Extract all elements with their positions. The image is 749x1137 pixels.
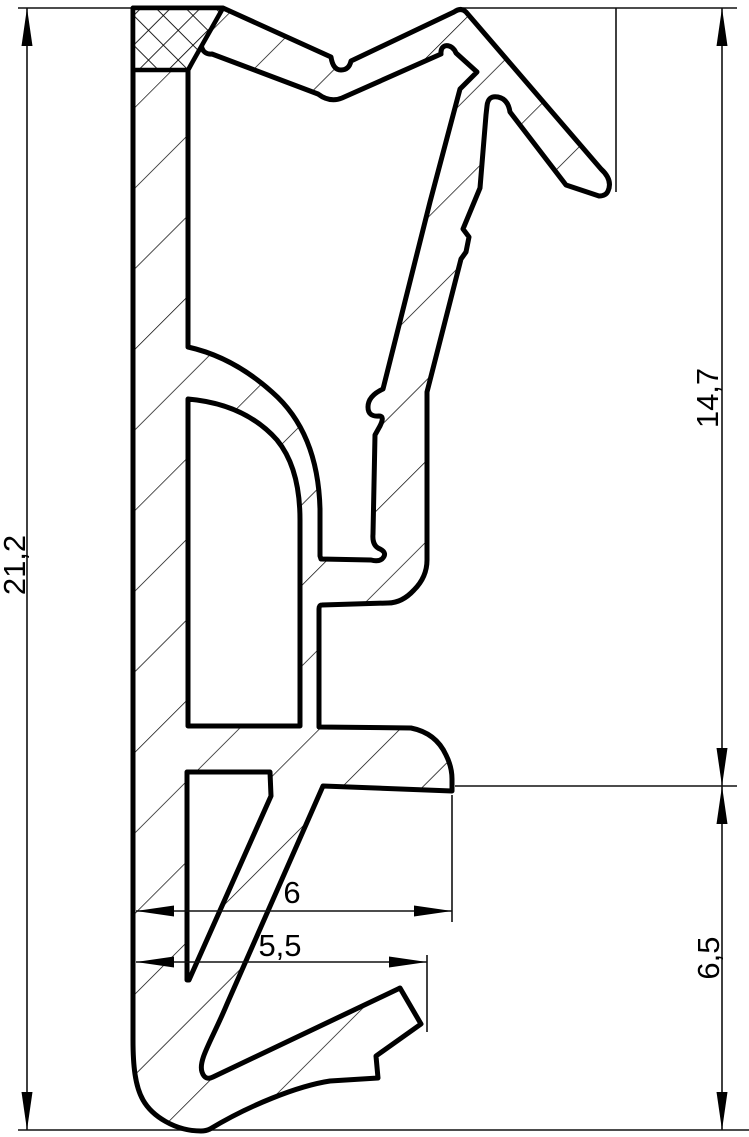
seal-profile-drawing: 21,2 14,7 6,5 6 5,5 [0,0,749,1137]
arrowhead-down-icon [717,1092,728,1130]
arrowhead-up-icon [717,786,728,824]
arrowhead-right-icon [389,957,427,968]
dim-label-upper-section-height: 14,7 [690,368,725,428]
arrowhead-up-icon [717,8,728,46]
arrowhead-down-icon [22,1092,33,1130]
dim-label-lower-section-height: 6,5 [691,936,726,979]
dim-label-overall-height: 21,2 [0,535,32,595]
arrowhead-up-icon [22,8,33,46]
arrowhead-right-icon [414,906,452,917]
dimension-labels: 21,2 14,7 6,5 6 5,5 [0,368,726,980]
dim-label-lip-width: 5,5 [258,928,301,963]
arrowhead-down-icon [717,748,728,786]
dim-label-foot-width: 6 [283,875,300,910]
technical-drawing-page: 21,2 14,7 6,5 6 5,5 [0,0,749,1137]
